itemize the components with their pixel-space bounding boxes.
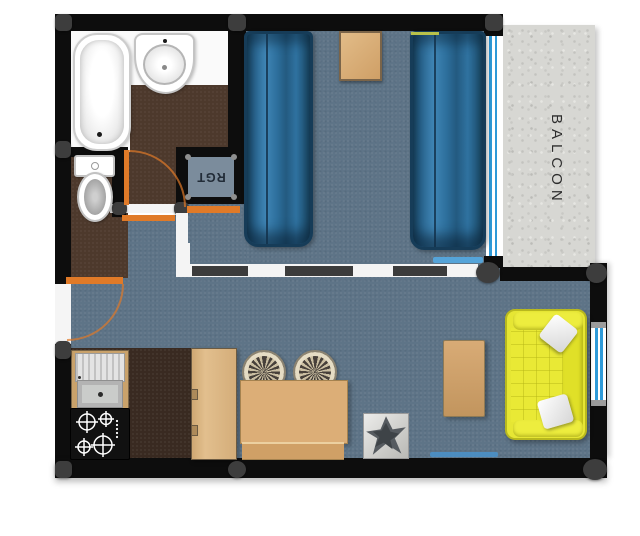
cooktop-burners <box>71 409 129 459</box>
bed-right <box>410 31 486 250</box>
balcony-door-window <box>486 36 503 256</box>
closet-corner-dot <box>231 154 237 160</box>
plant-tile <box>363 413 409 459</box>
kitchen-sink <box>77 380 123 408</box>
living-window <box>591 328 606 400</box>
dining-table <box>240 380 348 444</box>
plant <box>364 414 408 458</box>
dining-table-edge <box>242 442 344 460</box>
partition-segment <box>393 266 447 276</box>
bed-accent-line <box>411 32 439 35</box>
wall-post <box>476 262 500 283</box>
balcony-label: BALCON <box>531 77 565 242</box>
storage-door-threshold <box>187 206 240 213</box>
bathtub-drain <box>97 132 102 137</box>
window-glass-line <box>489 36 492 256</box>
wall-left <box>55 14 71 460</box>
window-glass-line <box>595 328 598 400</box>
corner-post <box>485 14 503 31</box>
coffee-table <box>443 340 485 417</box>
partition-segment <box>192 266 248 276</box>
toilet-bowl <box>77 172 113 222</box>
bathtub <box>73 33 131 151</box>
kitchen-sink-drain <box>98 392 103 397</box>
wall-post <box>586 263 607 283</box>
wall-bottom <box>55 458 607 478</box>
nightstand <box>339 31 382 81</box>
wardrobe-handle <box>191 425 198 436</box>
corner-post <box>228 461 246 478</box>
storage-closet-floor: RGT <box>188 157 234 197</box>
partition-segment <box>285 266 353 276</box>
bedroom-radiator <box>433 257 483 263</box>
kitchen-sink-unit <box>71 350 129 410</box>
storage-closet: RGT <box>176 147 246 204</box>
living-window-cap-bottom <box>591 400 606 406</box>
kitchen-tap <box>78 376 81 379</box>
window-glass-line <box>495 36 498 256</box>
sofa <box>505 309 587 440</box>
wall-post <box>55 141 71 158</box>
toilet-seat <box>84 179 106 215</box>
entry-door-threshold <box>66 277 123 284</box>
drainboard <box>75 353 125 382</box>
balcony: BALCON <box>503 25 595 268</box>
window-glass-line <box>600 328 603 400</box>
closet-corner-dot <box>185 194 191 200</box>
closet-corner-dot <box>185 154 191 160</box>
hall-door-threshold <box>122 215 175 221</box>
wardrobe <box>191 348 237 460</box>
closet-corner-dot <box>231 194 237 200</box>
wall-post <box>55 341 71 359</box>
storage-label: RGT <box>188 157 234 197</box>
toilet-button <box>91 162 99 170</box>
bed-left <box>244 31 313 247</box>
corner-post <box>583 459 607 480</box>
corner-post <box>228 14 246 31</box>
wall-top <box>55 14 503 31</box>
floor-plan: BALCON RGT <box>0 0 640 536</box>
cooktop <box>70 408 130 460</box>
partition-end-block <box>176 243 190 277</box>
bathtub-basin <box>80 40 124 144</box>
corner-post <box>55 461 72 478</box>
wardrobe-handle <box>191 389 198 400</box>
living-radiator <box>430 452 498 457</box>
washbasin-tap <box>163 39 167 43</box>
corner-post <box>55 14 72 31</box>
washbasin-drain <box>162 65 167 70</box>
